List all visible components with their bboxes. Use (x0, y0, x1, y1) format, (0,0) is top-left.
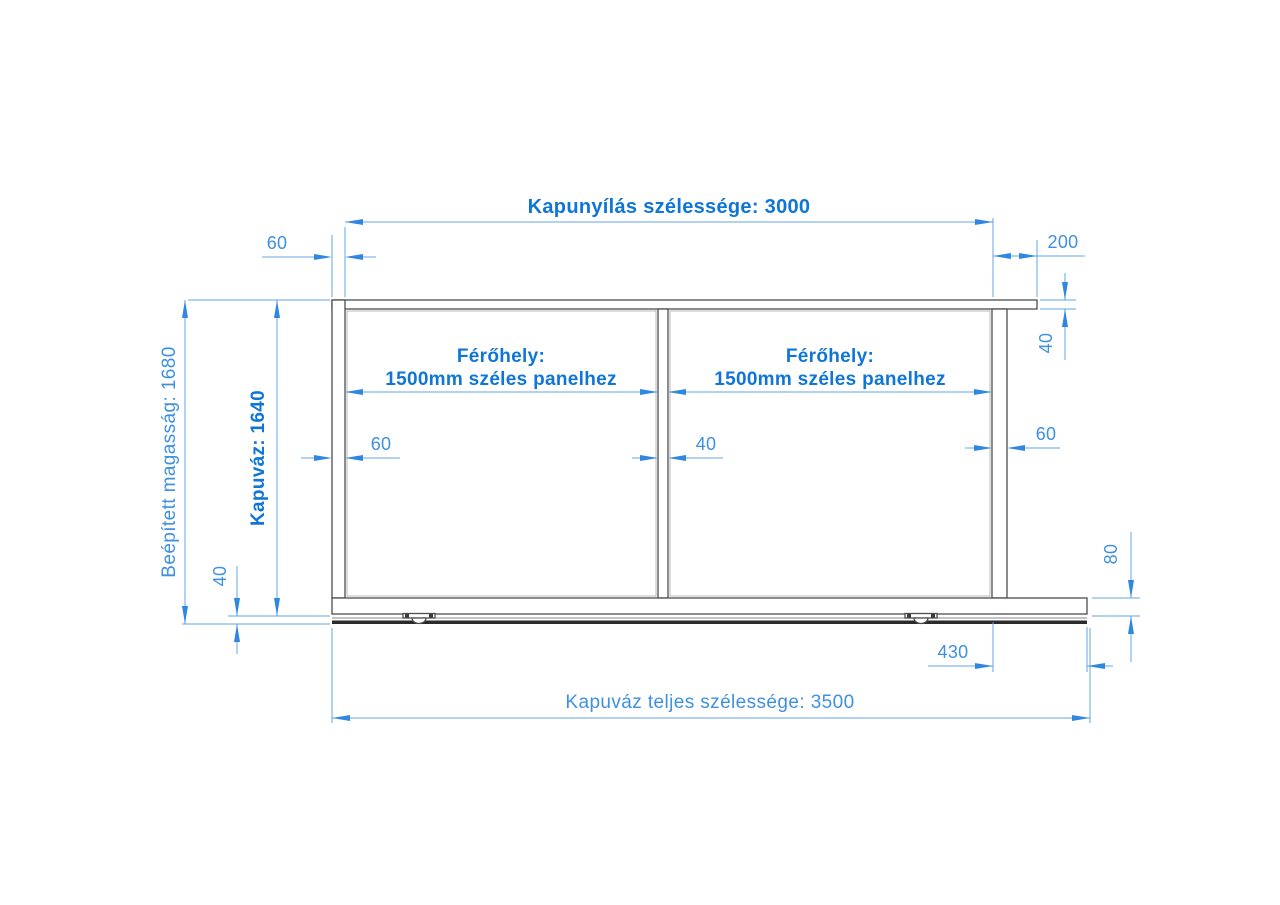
dim-opening-width-label: Kapunyílás szélessége: 3000 (528, 196, 811, 218)
dim-right-top-overhang-label: 200 (1048, 232, 1079, 252)
panel2-subtitle: 1500mm széles panelhez (714, 369, 946, 390)
dim-opening-width: Kapunyílás szélessége: 3000 (345, 196, 993, 297)
dim-track-height-label: 40 (210, 566, 230, 587)
left-post (332, 300, 345, 598)
dim-panel2-space: Férőhely: 1500mm széles panelhez (668, 346, 992, 395)
right-post (992, 309, 1007, 598)
dim-total-width: Kapuváz teljes szélessége: 3500 (332, 628, 1090, 723)
panel1-subtitle: 1500mm széles panelhez (385, 369, 617, 390)
dim-middle-post-width-label: 40 (696, 434, 717, 454)
bottom-rail (332, 598, 1087, 614)
middle-post (658, 309, 668, 598)
dim-frame-height-label: Kapuváz: 1640 (248, 390, 269, 526)
dim-bottom-rail-height: 80 (1092, 532, 1140, 662)
dim-left-post-width: 60 (301, 434, 400, 461)
dim-track-height: 40 (210, 566, 240, 654)
dim-base-overhang-right: 430 (928, 622, 1113, 672)
dim-top-rail-height: 40 (1036, 273, 1076, 360)
dim-right-top-overhang: 200 (993, 232, 1085, 297)
dim-base-overhang-right-label: 430 (938, 642, 969, 662)
dim-right-post-width-label: 60 (1036, 424, 1057, 444)
dim-left-post-width-label: 60 (371, 434, 392, 454)
dim-panel1-space: Férőhely: 1500mm széles panelhez (345, 346, 658, 395)
track-bar (332, 621, 1087, 625)
gate-drawing-page: Kapunyílás szélessége: 3000 60 200 40 Be… (0, 0, 1280, 905)
dim-installed-height-label: Beépített magasság: 1680 (159, 346, 180, 577)
dim-left-post-width-top: 60 (262, 233, 376, 297)
dim-installed-height: Beépített magasság: 1680 (159, 300, 330, 624)
panel2-title: Férőhely: (786, 346, 874, 367)
panel1-title: Férőhely: (457, 346, 545, 367)
dim-left-post-width-top-label: 60 (267, 233, 288, 253)
gate-frame (332, 300, 1087, 624)
dim-top-rail-height-label: 40 (1036, 333, 1056, 354)
top-rail (332, 300, 1037, 309)
dim-middle-post-width: 40 (632, 434, 723, 461)
gate-drawing-canvas: Kapunyílás szélessége: 3000 60 200 40 Be… (0, 0, 1280, 905)
dim-total-width-label: Kapuváz teljes szélessége: 3500 (565, 692, 854, 713)
dim-bottom-rail-height-label: 80 (1101, 544, 1121, 565)
dim-right-post-width: 60 (965, 424, 1060, 451)
